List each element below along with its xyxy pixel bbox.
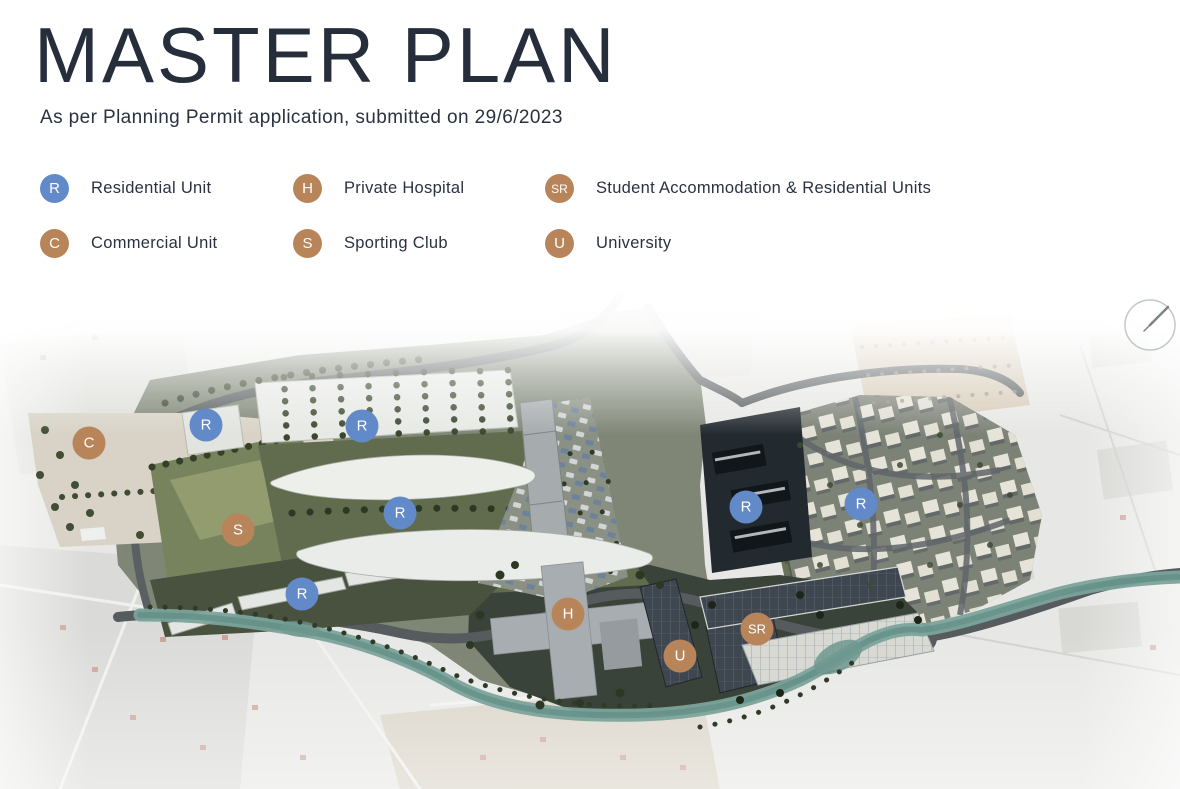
legend-item-r: RResidential Unit [40,174,293,203]
legend-badge-r: R [40,174,69,203]
legend-badge-u: U [545,229,574,258]
legend-badge-h: H [293,174,322,203]
legend-badge-sr: SR [545,174,574,203]
map-marker-r-3: R [384,497,417,530]
map-marker-r-1: R [190,409,223,442]
master-plan-page: MASTER PLAN As per Planning Permit appli… [0,0,1180,789]
page-subtitle: As per Planning Permit application, subm… [40,107,563,129]
masterplan-map: CRRRSRHUSRRR [0,285,1180,789]
legend-badge-c: C [40,229,69,258]
legend-label: Student Accommodation & Residential Unit… [596,179,931,198]
legend: RResidential UnitHPrivate HospitalSRStud… [40,174,1140,258]
map-markers-layer: CRRRSRHUSRRR [0,285,1180,789]
legend-label: Sporting Club [344,234,448,253]
legend-item-s: SSporting Club [293,229,545,258]
legend-label: Private Hospital [344,179,464,198]
map-marker-sr-8: SR [741,613,774,646]
legend-label: Commercial Unit [91,234,217,253]
map-marker-h-6: H [552,598,585,631]
map-marker-r-9: R [730,491,763,524]
map-marker-c-0: C [73,427,106,460]
map-marker-r-10: R [845,488,878,521]
page-title: MASTER PLAN [34,16,617,94]
map-marker-r-2: R [346,410,379,443]
legend-label: Residential Unit [91,179,211,198]
legend-item-h: HPrivate Hospital [293,174,545,203]
legend-item-c: CCommercial Unit [40,229,293,258]
map-marker-r-5: R [286,578,319,611]
map-marker-s-4: S [222,514,255,547]
legend-item-sr: SRStudent Accommodation & Residential Un… [545,174,1140,203]
map-marker-u-7: U [664,640,697,673]
legend-item-u: UUniversity [545,229,1140,258]
legend-label: University [596,234,671,253]
legend-badge-s: S [293,229,322,258]
